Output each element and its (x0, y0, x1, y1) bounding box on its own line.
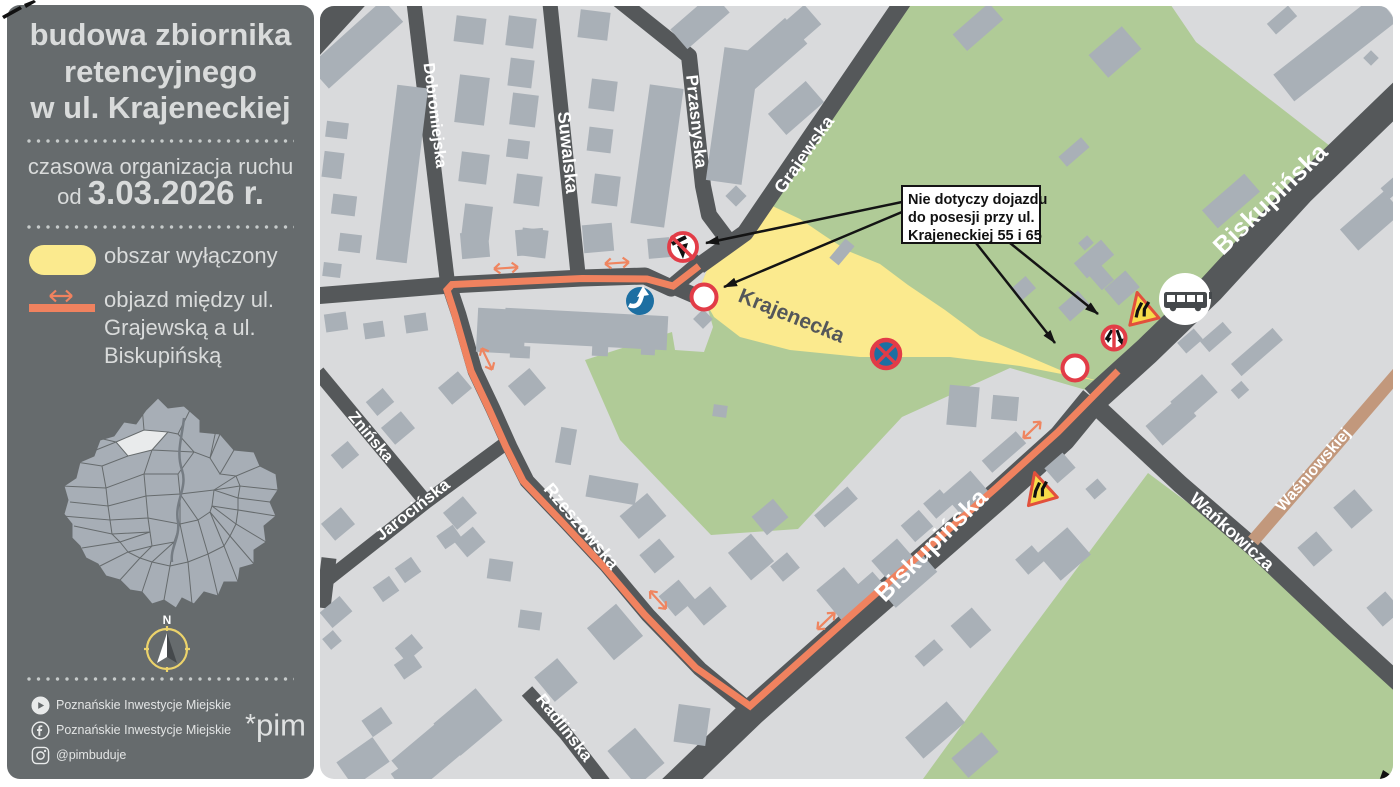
svg-text:Krajeneckiej 55 i 65: Krajeneckiej 55 i 65 (908, 228, 1042, 244)
svg-text:do posesji przy ul.: do posesji przy ul. (908, 210, 1035, 226)
svg-text:Nie dotyczy dojazdu: Nie dotyczy dojazdu (908, 192, 1047, 208)
